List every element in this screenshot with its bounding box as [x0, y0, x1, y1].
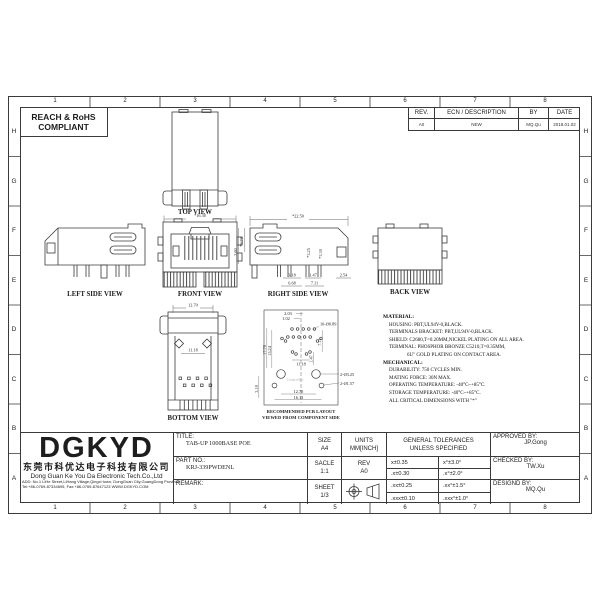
tolerance-cell: .xx°±1.5° [438, 479, 490, 492]
pcb-layout: 2.03 1.02 10-Ø0.89 17.78 15.24 11.18 7.1… [254, 310, 355, 420]
designed-label: DESIGND BY: [491, 480, 580, 487]
mechanical-title: MECHANICAL: [383, 360, 583, 368]
part-no-value: KRJ-339PWDENL [174, 464, 307, 471]
pcb-watermark: Centerline [287, 377, 304, 382]
scale-cell: SACLE 1:1 [307, 456, 341, 479]
approved-value: JP.Gong [491, 440, 580, 446]
company-address-line2: Tel:+86-0769-87334695, Fax:+86-0769-8764… [20, 485, 173, 490]
size-label: SIZE [318, 437, 331, 445]
third-angle-projection-icon [342, 480, 385, 503]
checked-label: CHECKED BY: [491, 457, 580, 464]
pcb-dim-1270: 12.70 [294, 389, 304, 394]
company-name-cn: 东莞市科优达电子科技有限公司 [20, 462, 173, 473]
rev-value: A0 [360, 468, 367, 476]
front-width-dim: *16.30 [194, 213, 206, 218]
pcb-label-line1: RECOMMENDED PCB LAYOUT [267, 409, 336, 414]
title-block: DGKYD 东莞市科优达电子科技有限公司 Dong Guan Ke You Da… [20, 432, 580, 503]
units-cell: UNITS MM[INCH] [341, 433, 386, 456]
material-note: TERMINALS BRACKET: PBT,UL94V-0,BLACK. [383, 329, 583, 337]
front-view: *16.30 FRONT VIEW [158, 213, 242, 298]
drawing-views: TOP VIEW *16.30 FRONT VIEW [0, 0, 600, 600]
right-dim-318: 3.18 [288, 273, 296, 278]
pcb-dim-1524: 15.24 [267, 345, 272, 356]
pcb-label-line2: VIEWED FROM COMPONENT SIDE [262, 415, 340, 420]
tolerance-cell: .x±0.30 [386, 468, 438, 479]
right-dim-711: 7.11 [311, 281, 318, 286]
bottom-inner-dim: 11.18 [188, 348, 198, 353]
sheet-cell: SHEET 1/3 [307, 479, 341, 504]
part-no-cell: PART NO.: KRJ-339PWDENL [173, 456, 307, 479]
pcb-dim-peg: 2-Ø1.57 [340, 381, 355, 386]
right-dim-254: 2.54 [340, 273, 348, 278]
mechanical-note: ALL CRITICAL DIMENSIONS WITH "*" [383, 398, 583, 406]
material-title: MATERIAL: [383, 314, 583, 322]
approved-cell: APPROVED BY: JP.Gong [490, 433, 580, 456]
designed-value: MQ.Qu [491, 487, 580, 493]
left-side-view: LEFT SIDE VIEW [45, 224, 145, 298]
right-dim-325: *3.25 [306, 248, 311, 258]
right-dim-668: 6.68 [288, 281, 296, 286]
back-view-label: BACK VIEW [390, 289, 430, 296]
checked-value: TW.Xu [491, 464, 580, 470]
remark-label: REMARK: [174, 480, 307, 487]
scale-value: 1:1 [320, 468, 328, 476]
mechanical-note: STORAGE TEMPERATURE: -40°C~+85°C. [383, 390, 583, 398]
company-logo: DGKYD [20, 434, 173, 462]
tolerance-header-cell: GENERAL TOLERANCES UNLESS SPECIFIED [386, 433, 490, 456]
tolerance-title-line2: UNLESS SPECIFIED [387, 445, 490, 453]
checked-cell: CHECKED BY: TW.Xu [490, 456, 580, 479]
pcb-dim-1118: 11.18 [296, 362, 306, 367]
pcb-dim-mount: 2-Ø3.25 [340, 372, 354, 377]
part-no-label: PART NO.: [174, 457, 307, 464]
right-dim-360: 3.60 [233, 248, 238, 256]
material-note: HOUSING: PBT,UL94V-0,BLACK. [383, 322, 583, 330]
pcb-dim-1613: 16.13 [294, 395, 304, 400]
mechanical-note: DURABILITY: 750 CYCLES MIN. [383, 367, 583, 375]
scale-label: SACLE [315, 460, 335, 468]
front-view-label: FRONT VIEW [178, 291, 222, 298]
title-value: TAB-UP 1000BASE POE [174, 440, 307, 447]
size-value: A4 [321, 445, 328, 453]
mechanical-note: MATING FORCE: 30N MAX. [383, 375, 583, 383]
material-note: SHIELD: C2680,T=0.20MM,NICKEL PLATING ON… [383, 337, 583, 345]
rev-label: REV [358, 460, 370, 468]
pcb-dim-102: 1.02 [282, 316, 290, 321]
rev-cell: REV A0 [341, 456, 386, 479]
sheet-label: SHEET [314, 484, 334, 492]
left-view-label: LEFT SIDE VIEW [67, 291, 123, 298]
designed-cell: DESIGND BY: MQ.Qu [490, 479, 580, 504]
title-label: TITLE: [174, 433, 307, 440]
bottom-view: 12.70 11.18 BOTTOM VIEW [160, 303, 226, 423]
engineering-drawing-sheet: 12345678 12345678 HGFEDCBA HGFEDCBA REAC… [0, 0, 600, 600]
bottom-view-label: BOTTOM VIEW [168, 415, 219, 422]
tolerance-cell: x°±3.0° [438, 456, 490, 468]
remark-cell: REMARK: [173, 479, 307, 504]
back-view: BACK VIEW [373, 224, 447, 296]
pcb-dim-318: 3.18 [254, 385, 259, 393]
mechanical-note: OPERATING TEMPERATURE: -40°C~+85°C. [383, 382, 583, 390]
title-cell: TITLE: TAB-UP 1000BASE POE [173, 433, 307, 456]
tolerance-cell: .xxx±0.10 [386, 492, 438, 504]
pcb-dim-147: 1.47 [309, 354, 314, 362]
approved-label: APPROVED BY: [491, 433, 580, 440]
material-note: 6U" GOLD PLATING ON CONTACT AREA. [383, 352, 583, 360]
tolerance-cell: .xxx°±1.0° [438, 492, 490, 504]
tolerance-cell: x±0.35 [386, 456, 438, 468]
size-cell: SIZE A4 [307, 433, 341, 456]
pcb-dim-711: 7.11 [317, 338, 322, 345]
tolerance-title-line1: GENERAL TOLERANCES [387, 437, 490, 445]
company-cell: DGKYD 东莞市科优达电子科技有限公司 Dong Guan Ke You Da… [20, 433, 173, 504]
right-view-label: RIGHT SIDE VIEW [268, 291, 329, 298]
material-note: TERMINAL: PHOSPHOR BRONZE C5210,T=0.35MM… [383, 344, 583, 352]
right-width-dim: *22.50 [292, 214, 304, 219]
notes-block: MATERIAL: HOUSING: PBT,UL94V-0,BLACK. TE… [383, 314, 583, 405]
pcb-dim-holes: 10-Ø0.89 [320, 322, 336, 327]
sheet-value: 1/3 [320, 492, 328, 500]
projection-symbol-cell [341, 479, 386, 504]
units-label: UNITS [355, 437, 373, 445]
tolerance-cell: .x°±2.0° [438, 468, 490, 479]
right-dim-370: *3.70 [239, 237, 244, 247]
bottom-width-dim: 12.70 [188, 303, 198, 308]
right-dim-147: 1.47 [309, 273, 317, 278]
top-view: TOP VIEW [163, 110, 227, 217]
tolerance-cell: .xx±0.25 [386, 479, 438, 492]
right-dim-330: *3.30 [318, 249, 323, 259]
right-side-view: *22.50 *3.70 3.60 *3.25 *3.30 3.18 6.68 … [233, 214, 351, 299]
units-value: MM[INCH] [350, 445, 378, 453]
